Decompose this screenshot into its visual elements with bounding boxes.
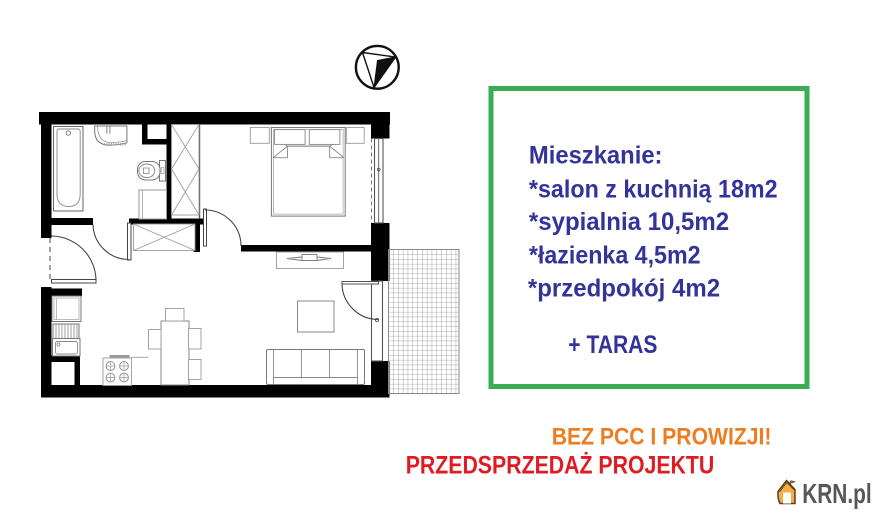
svg-text:KRN.pl: KRN.pl: [802, 478, 872, 509]
svg-text:*sypialnia 10,5m2: *sypialnia 10,5m2: [529, 208, 729, 236]
svg-text:*łazienka 4,5m2: *łazienka 4,5m2: [529, 241, 701, 269]
svg-text:Mieszkanie:: Mieszkanie:: [529, 142, 663, 170]
svg-text:+ TARAS: + TARAS: [568, 331, 657, 359]
svg-text:*salon z kuchnią 18m2: *salon z kuchnią 18m2: [529, 175, 778, 203]
svg-text:BEZ PCC I PROWIZJI!: BEZ PCC I PROWIZJI!: [552, 423, 772, 450]
svg-text:PRZEDSPRZEDAŻ PROJEKTU: PRZEDSPRZEDAŻ PROJEKTU: [406, 452, 715, 480]
svg-text:*przedpokój 4m2: *przedpokój 4m2: [528, 275, 720, 303]
